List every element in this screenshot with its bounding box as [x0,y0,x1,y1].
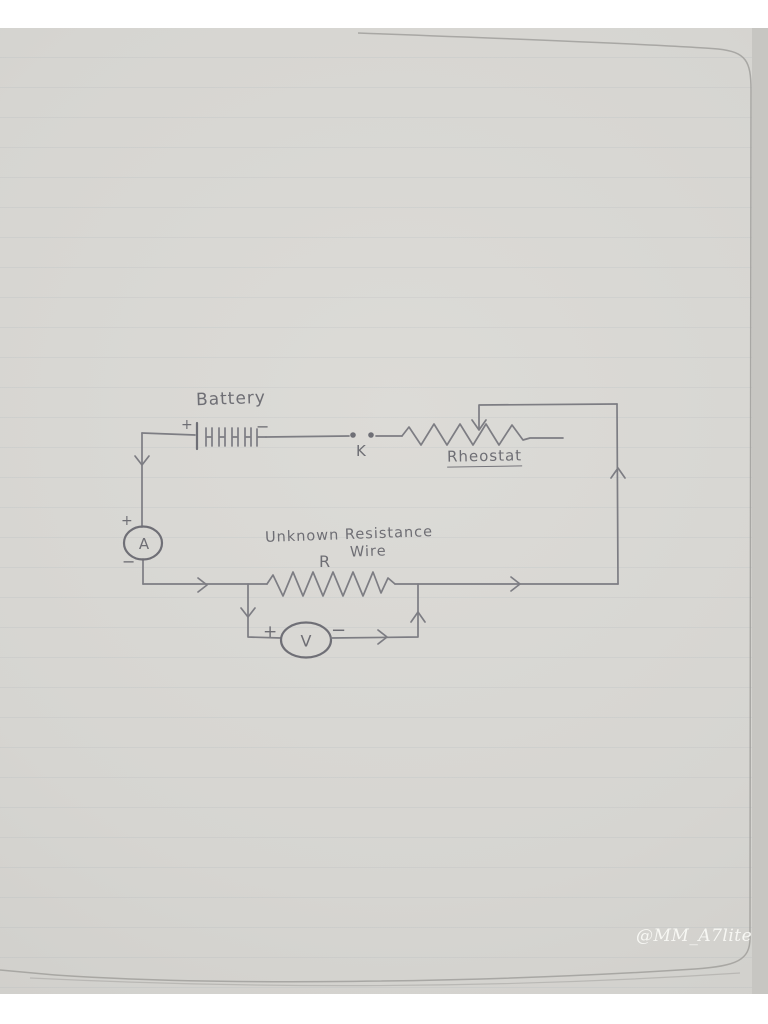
rheostat-symbol [402,424,563,445]
unknown-resistance-r-symbol: R [319,552,331,571]
ammeter-letter: A [139,535,149,553]
ammeter-plus-sign: + [121,513,133,529]
rheostat-wiper-wire [472,404,617,430]
ammeter-minus-sign: − [122,552,135,571]
voltmeter-plus-sign: + [263,622,277,642]
key-label: K [356,442,367,460]
battery-symbol [142,423,266,449]
unknown-resistance-label-line2: Wire [350,543,387,560]
rheostat-label: Rheostat [447,446,522,467]
key-symbol [266,432,402,438]
voltmeter-letter: V [301,632,312,651]
key-dot-left [350,432,356,438]
left-wire [135,433,149,584]
battery-label: Battery [196,388,267,410]
battery-minus-sign: − [256,417,269,436]
right-wire [611,404,625,584]
key-dot-right [368,432,374,438]
voltmeter-minus-sign: − [331,620,346,641]
photo-of-notebook: Battery + − K Rheostat A + − Unknown Res… [0,0,768,1024]
unknown-resistance-symbol [143,572,618,596]
page-edge-line [0,33,751,986]
current-arrow-right-left-segment [198,578,207,592]
circuit-drawing [0,0,768,1024]
battery-plus-sign: + [181,417,193,433]
watermark-text: @MM_A7lite [636,926,752,946]
